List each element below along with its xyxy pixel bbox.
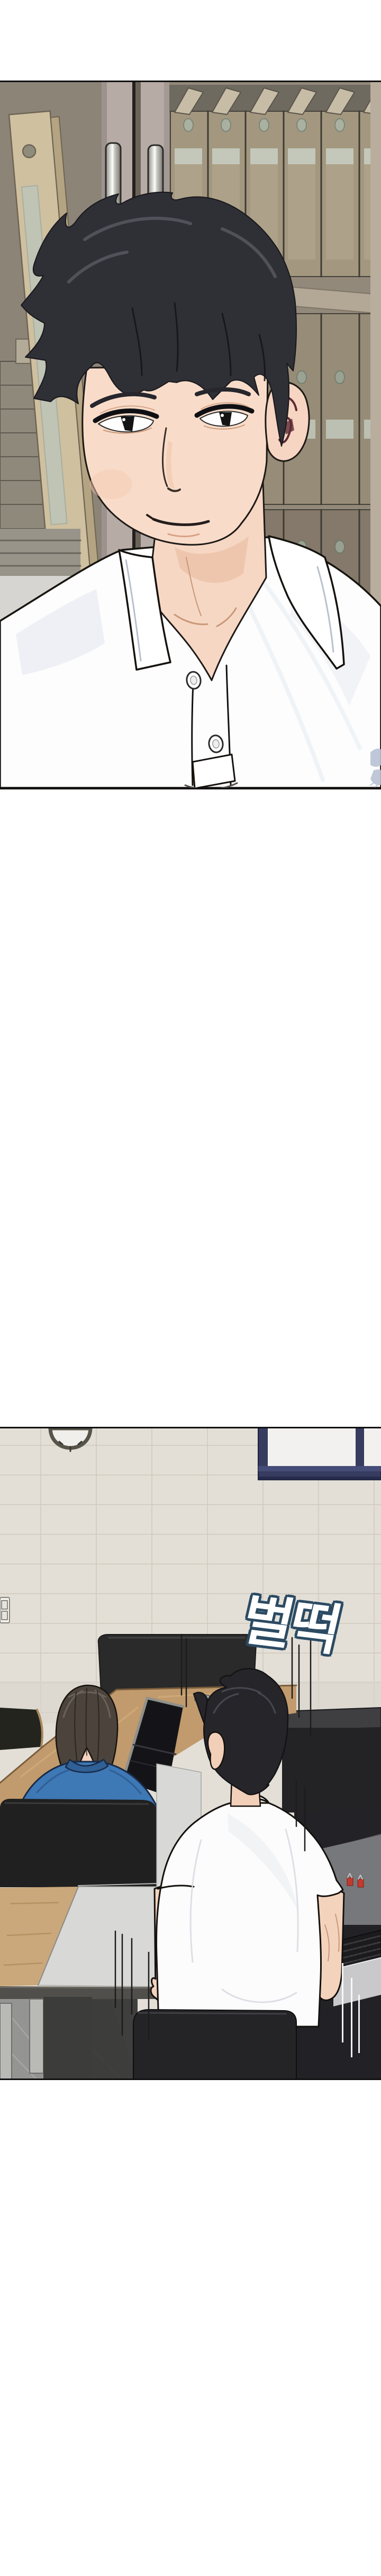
window-pane — [268, 1427, 356, 1466]
chair-standing-man — [133, 2010, 296, 2080]
office-chair-right — [277, 1708, 381, 1813]
binder-ring-hole — [22, 144, 36, 158]
light-switch — [0, 1597, 10, 1623]
panel-border-top — [0, 81, 381, 82]
chair-back-blue-man — [0, 1799, 157, 1887]
comic-panel-1 — [0, 81, 381, 789]
window-pane — [364, 1427, 381, 1466]
chair-far-left — [0, 1708, 42, 1750]
floor — [0, 1997, 138, 2080]
window — [258, 1427, 381, 1480]
panel-1-art — [0, 81, 381, 789]
table-leg — [30, 1999, 43, 2073]
table-side-panel — [43, 1997, 92, 2080]
panel-2-art — [0, 1427, 381, 2080]
panel-border-bottom — [0, 788, 381, 789]
panel-border-top — [0, 1427, 381, 1428]
panel-border-bottom — [0, 2078, 381, 2080]
table-leg — [0, 2003, 12, 2080]
comic-panel-2 — [0, 1427, 381, 2080]
